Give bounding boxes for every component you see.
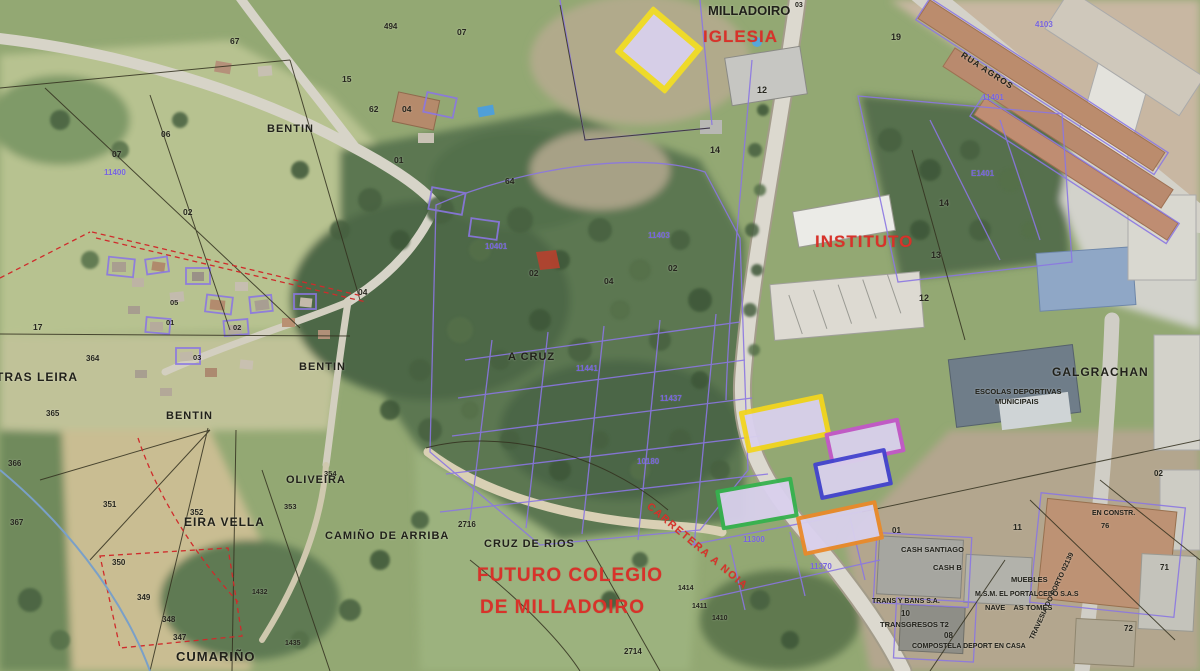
milladoiro-superscript: 03 — [795, 2, 803, 9]
cadastral-ref: 11300 — [743, 536, 765, 544]
transgresos-label: TRANSGRESOS T2 — [880, 621, 949, 629]
parcel-number: 04 — [402, 105, 411, 114]
parcel-number: 08 — [944, 632, 953, 640]
parcel-number: 348 — [162, 616, 175, 624]
cadastral-ref: 4103 — [1035, 21, 1053, 29]
parcel-number: 367 — [10, 519, 23, 527]
cadastral-ref: 10401 — [485, 243, 507, 251]
parcel-number: 02 — [183, 208, 192, 217]
cash-santiago-label: CASH SANTIAGO — [901, 546, 964, 554]
parcel-number: 14 — [939, 199, 949, 208]
parcel-number: 03 — [193, 354, 201, 362]
parcel-number: 13 — [931, 251, 941, 260]
parcel-number: 364 — [86, 355, 99, 363]
parcel-number: 494 — [384, 23, 397, 31]
parcel-number: 02 — [233, 324, 241, 332]
parcel-number: 366 — [8, 460, 21, 468]
camino-de-arriba-label: CAMIÑO DE ARRIBA — [325, 531, 449, 542]
trans-y-bans-label: TRANS Y BANS S.A. — [872, 598, 940, 605]
parcel-number: 15 — [342, 75, 351, 84]
cadastral-ref: 11441 — [576, 365, 598, 373]
cadastral-ref: 11370 — [810, 563, 832, 571]
tras-leira-label: TRAS LEIRA — [0, 371, 78, 383]
parcel-number: 05 — [170, 299, 178, 307]
parcel-number: 1435 — [285, 640, 301, 647]
parcel-number: 354 — [324, 470, 337, 478]
a-cruz-label: A CRUZ — [508, 352, 555, 363]
parcel-number: 12 — [919, 294, 929, 303]
escolas-deportivas-line2: MUNICIPAIS — [995, 398, 1039, 406]
parcel-number: 347 — [173, 634, 186, 642]
parcel-number: 01 — [892, 527, 901, 535]
cumarino-label: CUMARIÑO — [176, 650, 256, 663]
cadastral-ref: E1401 — [971, 170, 994, 178]
parcel-number: 350 — [112, 559, 125, 567]
en-constr-label: EN CONSTR. — [1092, 510, 1135, 517]
parcel-number: 02 — [529, 269, 538, 278]
parcel-number: 04 — [358, 288, 367, 297]
escolas-deportivas-line1: ESCOLAS DEPORTIVAS — [975, 388, 1062, 396]
parcel-number: 12 — [757, 86, 767, 95]
parcel-number: 353 — [284, 503, 297, 511]
parcel-number: 71 — [1160, 564, 1169, 572]
milladoiro-label: MILLADOIRO — [708, 4, 790, 17]
futuro-colegio-line2: DE MILLADOIRO — [480, 598, 645, 617]
parcel-number: 01 — [394, 156, 403, 165]
parcel-number: 2714 — [624, 648, 642, 656]
parcel-number: 365 — [46, 410, 59, 418]
bentin-north-label: BENTIN — [267, 124, 314, 135]
parcel-number: 351 — [103, 501, 116, 509]
cadastral-ref: 11437 — [660, 395, 682, 403]
parcel-number: 62 — [369, 105, 378, 114]
cash-b-label: CASH B — [933, 564, 962, 572]
cadastral-ref: 10180 — [637, 458, 659, 466]
parcel-number: 2716 — [458, 521, 476, 529]
galgrachan-label: GALGRACHAN — [1052, 366, 1149, 378]
futuro-colegio-line1: FUTURO COLEGIO — [477, 566, 663, 585]
parcel-number: 1432 — [252, 589, 268, 596]
cadastral-ref: 11401 — [982, 94, 1004, 102]
parcel-number: 07 — [112, 150, 121, 159]
cadastral-ref: 11400 — [104, 169, 126, 177]
parcel-number: 01 — [166, 319, 174, 327]
map-canvas: IGLESIAINSTITUTOFUTURO COLEGIODE MILLADO… — [0, 0, 1200, 671]
parcel-number: 06 — [161, 130, 170, 139]
muebles-label: MUEBLES — [1011, 576, 1048, 584]
small-red-parcel — [536, 250, 560, 270]
compostela-deport-label: COMPOSTELA DEPORT EN CASA — [912, 643, 1026, 650]
parcel-number: 72 — [1124, 625, 1133, 633]
parcel-number: 352 — [190, 509, 203, 517]
portalcedo-label: M.S.M. EL PORTALCEDO S.A.S — [975, 591, 1079, 598]
parcel-number: 1414 — [678, 585, 694, 592]
parcel-number: 76 — [1101, 522, 1109, 530]
parcel-number: 04 — [604, 277, 613, 286]
parcel-number: 14 — [710, 146, 720, 155]
parcel-number: 17 — [33, 323, 42, 332]
parcel-number: 02 — [668, 264, 677, 273]
bentin-south-label: BENTIN — [166, 411, 213, 422]
parcel-number: 19 — [891, 33, 901, 42]
parcel-number: 02 — [1154, 470, 1163, 478]
parcel-number: 10 — [901, 610, 910, 618]
cruz-de-rios-label: CRUZ DE RIOS — [484, 539, 575, 550]
parcel-number: 07 — [457, 28, 466, 37]
cadastral-ref: 11403 — [648, 232, 670, 240]
eira-vella-label: EIRA VELLA — [184, 516, 265, 528]
iglesia-label: IGLESIA — [703, 28, 778, 45]
parcel-number: 11 — [1013, 523, 1022, 532]
bentin-mid-label: BENTIN — [299, 362, 346, 373]
parcel-number: 67 — [230, 37, 239, 46]
parcel-number: 64 — [505, 177, 514, 186]
parcel-number: 349 — [137, 594, 150, 602]
parcel-number: 1410 — [712, 615, 728, 622]
parcel-number: 1411 — [692, 603, 707, 610]
instituto-label: INSTITUTO — [815, 233, 913, 250]
